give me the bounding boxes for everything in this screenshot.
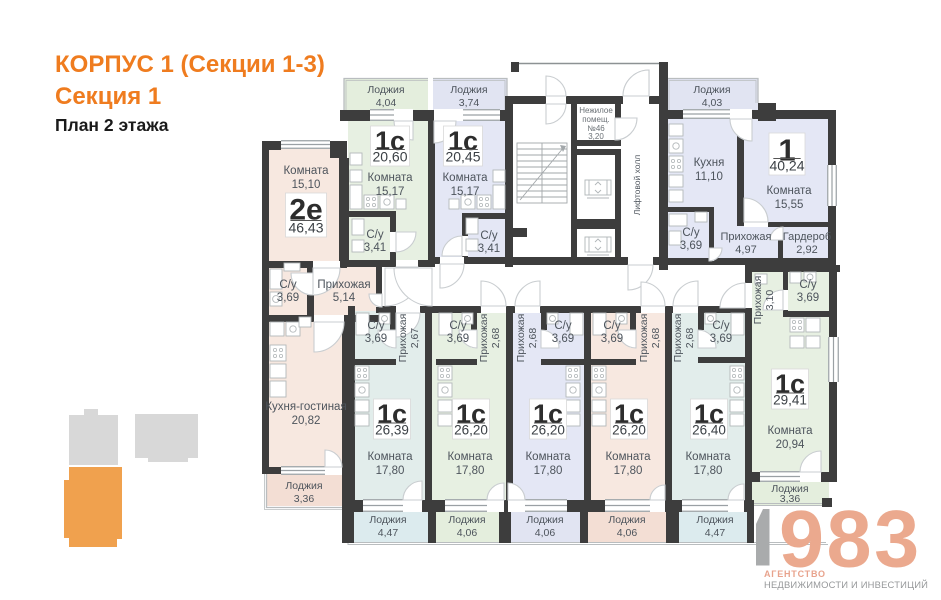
svg-text:С/у: С/у	[554, 320, 572, 332]
svg-text:46,43: 46,43	[288, 220, 323, 236]
svg-text:2,68: 2,68	[650, 328, 662, 349]
svg-text:20,45: 20,45	[445, 149, 480, 165]
svg-text:НЕДВИЖИМОСТИ И ИНВЕСТИЦИЙ: НЕДВИЖИМОСТИ И ИНВЕСТИЦИЙ	[764, 579, 928, 590]
svg-text:4,97: 4,97	[735, 244, 756, 256]
svg-text:Лоджия: Лоджия	[448, 514, 485, 526]
svg-text:Кухня-гостиная: Кухня-гостиная	[265, 401, 346, 413]
svg-text:4,03: 4,03	[702, 97, 723, 109]
svg-text:Лоджия: Лоджия	[450, 84, 487, 96]
svg-text:Лифтовой холл: Лифтовой холл	[632, 155, 642, 216]
svg-text:Прихожая: Прихожая	[721, 231, 772, 243]
svg-text:Комната: Комната	[367, 172, 413, 184]
svg-text:3,69: 3,69	[552, 333, 574, 345]
svg-text:3,41: 3,41	[364, 242, 386, 254]
svg-text:3,36: 3,36	[294, 493, 315, 505]
svg-text:3,69: 3,69	[797, 292, 819, 304]
svg-text:Гардероб: Гардероб	[783, 231, 831, 243]
svg-text:Нежилое: Нежилое	[579, 106, 613, 115]
svg-text:2,92: 2,92	[796, 244, 817, 256]
svg-text:С/у: С/у	[712, 320, 730, 332]
svg-text:Комната: Комната	[525, 451, 571, 463]
svg-text:Кухня: Кухня	[694, 157, 725, 169]
svg-text:Прихожая: Прихожая	[752, 276, 764, 325]
svg-text:Лоджия: Лоджия	[608, 514, 645, 526]
svg-text:Лоджия: Лоджия	[285, 480, 322, 492]
svg-text:3,20: 3,20	[588, 132, 604, 141]
svg-text:3,69: 3,69	[277, 292, 299, 304]
svg-text:Прихожая: Прихожая	[515, 314, 527, 363]
svg-text:3,10: 3,10	[764, 290, 776, 311]
svg-text:2,68: 2,68	[490, 328, 502, 349]
svg-text:Прихожая: Прихожая	[672, 314, 684, 363]
svg-text:4,47: 4,47	[378, 527, 399, 539]
svg-text:Лоджия: Лоджия	[693, 84, 730, 96]
svg-text:26,20: 26,20	[612, 423, 646, 438]
svg-text:Прихожая: Прихожая	[317, 279, 370, 291]
svg-text:АГЕНТСТВО: АГЕНТСТВО	[764, 569, 826, 579]
svg-text:17,80: 17,80	[614, 465, 643, 477]
svg-text:15,17: 15,17	[451, 186, 480, 198]
svg-text:17,80: 17,80	[456, 465, 485, 477]
svg-text:3,69: 3,69	[680, 240, 702, 252]
svg-text:Прихожая: Прихожая	[478, 314, 490, 363]
svg-text:15,10: 15,10	[292, 179, 321, 191]
svg-text:Прихожая: Прихожая	[397, 314, 409, 363]
svg-text:Комната: Комната	[605, 451, 651, 463]
svg-text:4,06: 4,06	[457, 527, 478, 539]
svg-text:3,41: 3,41	[478, 243, 500, 255]
svg-text:20,94: 20,94	[776, 439, 805, 451]
svg-text:29,41: 29,41	[773, 393, 807, 408]
svg-text:С/у: С/у	[603, 320, 621, 332]
svg-text:2,67: 2,67	[409, 328, 421, 349]
svg-text:26,40: 26,40	[692, 423, 726, 438]
svg-text:4,47: 4,47	[705, 527, 726, 539]
svg-text:помещ.: помещ.	[582, 115, 610, 124]
svg-text:40,24: 40,24	[769, 158, 804, 174]
svg-text:С/у: С/у	[480, 230, 498, 242]
svg-text:15,55: 15,55	[775, 199, 804, 211]
svg-text:3,69: 3,69	[365, 333, 387, 345]
svg-text:20,60: 20,60	[372, 149, 407, 165]
svg-text:17,80: 17,80	[694, 465, 723, 477]
svg-text:3,69: 3,69	[710, 333, 732, 345]
svg-text:Комната: Комната	[685, 451, 731, 463]
svg-text:С/у: С/у	[366, 229, 384, 241]
svg-text:С/у: С/у	[682, 227, 700, 239]
svg-text:3,74: 3,74	[459, 97, 480, 109]
svg-text:С/у: С/у	[367, 320, 385, 332]
svg-text:20,82: 20,82	[292, 415, 321, 427]
svg-text:С/у: С/у	[799, 279, 817, 291]
svg-text:КОРПУС 1 (Секции 1-3): КОРПУС 1 (Секции 1-3)	[55, 51, 325, 78]
svg-text:Комната: Комната	[367, 451, 413, 463]
svg-text:3,69: 3,69	[601, 333, 623, 345]
svg-text:26,20: 26,20	[531, 423, 565, 438]
svg-text:Секция 1: Секция 1	[55, 83, 161, 110]
svg-text:17,80: 17,80	[534, 465, 563, 477]
svg-text:Комната: Комната	[767, 425, 813, 437]
svg-text:4,06: 4,06	[617, 527, 638, 539]
svg-text:3,69: 3,69	[447, 333, 469, 345]
svg-text:План 2 этажа: План 2 этажа	[55, 115, 169, 135]
svg-text:Комната: Комната	[283, 165, 329, 177]
svg-text:11,10: 11,10	[695, 171, 723, 183]
svg-text:Прихожая: Прихожая	[638, 314, 650, 363]
svg-text:2,68: 2,68	[527, 328, 539, 349]
svg-text:4,06: 4,06	[535, 527, 556, 539]
svg-text:Лоджия: Лоджия	[367, 84, 404, 96]
svg-text:Комната: Комната	[766, 185, 812, 197]
svg-text:26,39: 26,39	[375, 423, 409, 438]
svg-text:Комната: Комната	[447, 451, 493, 463]
svg-text:5,14: 5,14	[333, 292, 356, 304]
svg-text:С/у: С/у	[449, 320, 467, 332]
svg-text:15,17: 15,17	[376, 186, 405, 198]
svg-text:Лоджия: Лоджия	[526, 514, 563, 526]
svg-text:Лоджия: Лоджия	[369, 514, 406, 526]
svg-text:С/у: С/у	[279, 279, 297, 291]
svg-text:Лоджия: Лоджия	[696, 514, 733, 526]
svg-text:17,80: 17,80	[376, 465, 405, 477]
svg-text:Комната: Комната	[442, 172, 488, 184]
svg-text:2,68: 2,68	[684, 328, 696, 349]
svg-text:4,04: 4,04	[376, 97, 397, 109]
svg-text:26,20: 26,20	[454, 423, 488, 438]
